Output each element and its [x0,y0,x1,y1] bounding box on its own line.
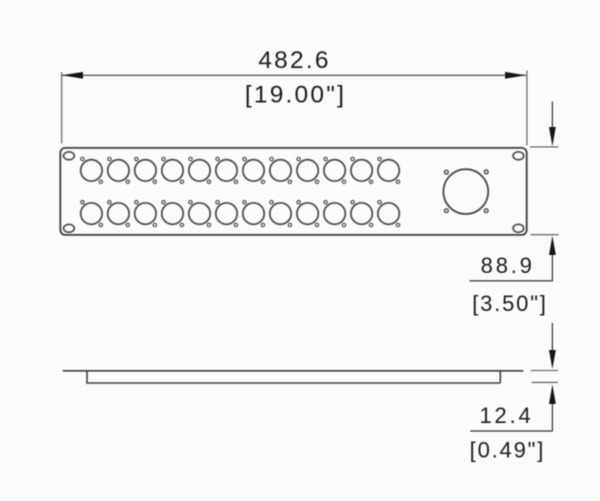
svg-text:[3.50"]: [3.50"] [472,291,547,316]
svg-text:12.4: 12.4 [479,403,533,428]
svg-text:482.6: 482.6 [258,47,330,74]
svg-text:88.9: 88.9 [481,253,535,278]
svg-text:[19.00"]: [19.00"] [245,82,346,109]
svg-text:[0.49"]: [0.49"] [470,438,545,463]
